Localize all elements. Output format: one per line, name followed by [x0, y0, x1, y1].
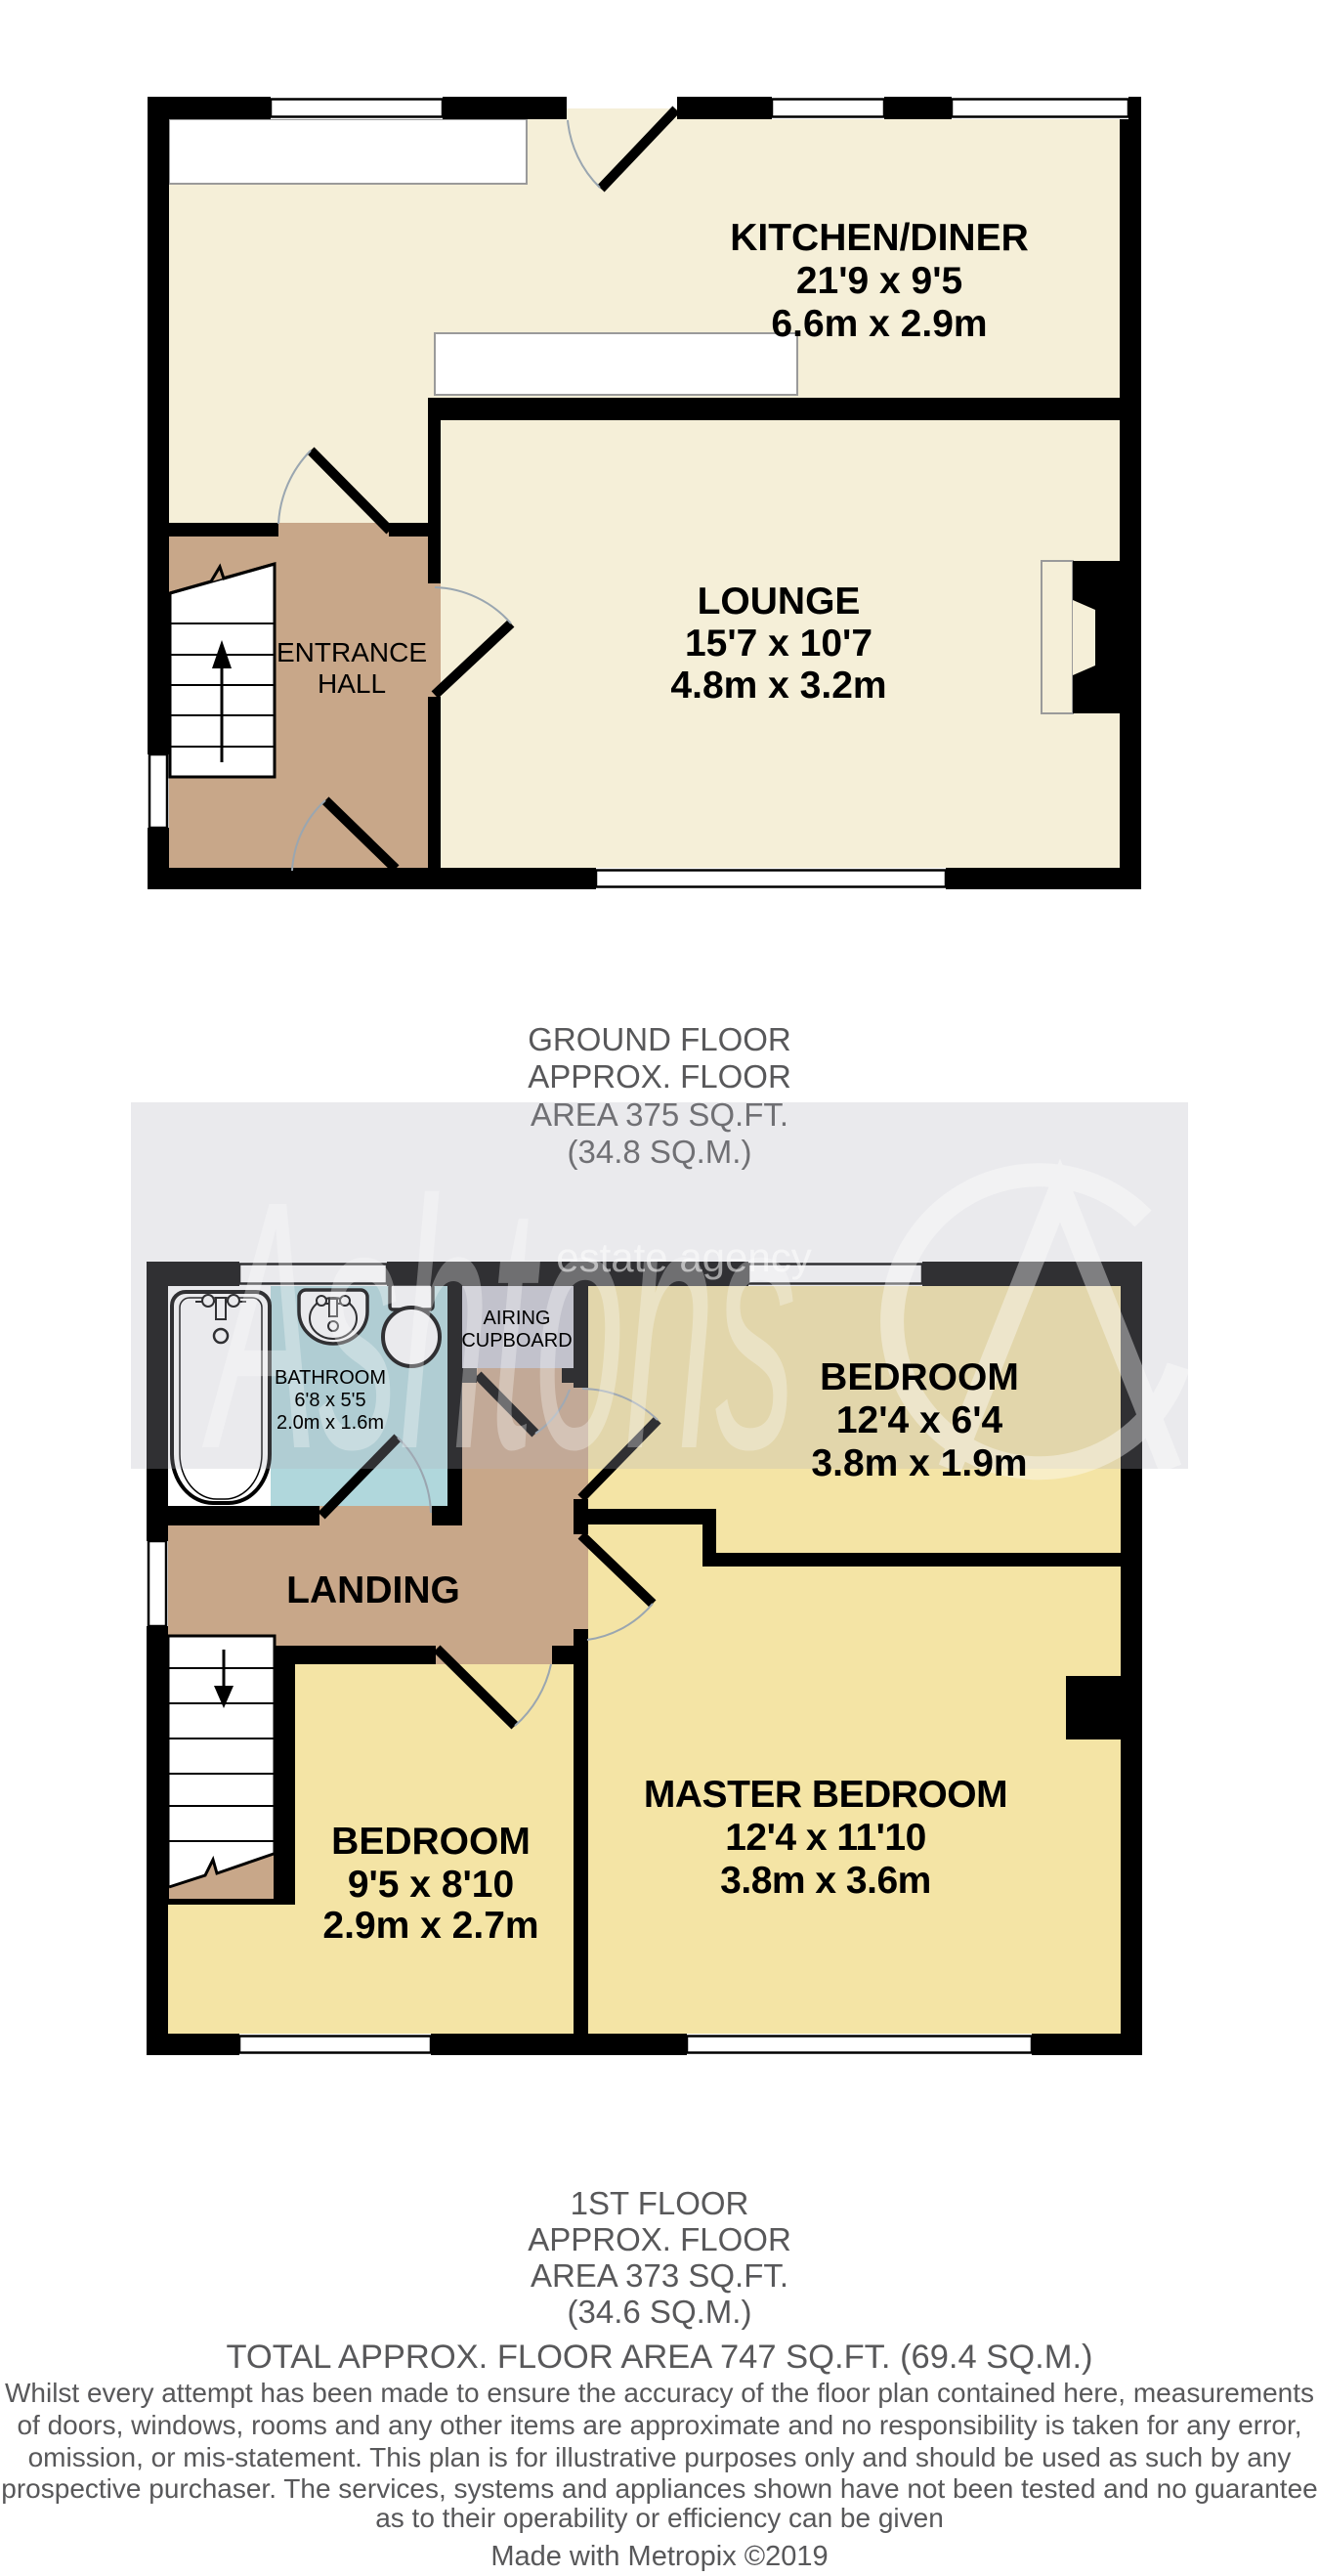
svg-text:LOUNGE: LOUNGE — [698, 580, 861, 623]
svg-text:(34.6 SQ.M.): (34.6 SQ.M.) — [568, 2294, 752, 2330]
svg-text:15'7 x 10'7: 15'7 x 10'7 — [685, 623, 872, 665]
svg-text:6'8 x 5'5: 6'8 x 5'5 — [294, 1390, 365, 1411]
svg-text:of doors, windows, rooms and a: of doors, windows, rooms and any other i… — [17, 2410, 1301, 2440]
svg-text:12'4 x 11'10: 12'4 x 11'10 — [725, 1817, 926, 1859]
svg-text:HALL: HALL — [318, 668, 386, 699]
svg-text:GROUND FLOOR: GROUND FLOOR — [528, 1021, 791, 1057]
svg-text:BEDROOM: BEDROOM — [820, 1356, 1019, 1398]
svg-text:3.8m x 1.9m: 3.8m x 1.9m — [811, 1442, 1027, 1484]
svg-text:AREA 373 SQ.FT.: AREA 373 SQ.FT. — [531, 2257, 788, 2294]
svg-text:MASTER BEDROOM: MASTER BEDROOM — [644, 1774, 1007, 1816]
svg-text:3.8m x 3.6m: 3.8m x 3.6m — [720, 1860, 931, 1902]
svg-text:APPROX. FLOOR: APPROX. FLOOR — [528, 1058, 791, 1095]
svg-text:APPROX. FLOOR: APPROX. FLOOR — [528, 2221, 791, 2257]
svg-text:KITCHEN/DINER: KITCHEN/DINER — [730, 217, 1029, 259]
svg-text:ENTRANCE: ENTRANCE — [277, 637, 427, 667]
svg-text:21'9 x 9'5: 21'9 x 9'5 — [796, 260, 962, 302]
svg-text:as to their operability or eff: as to their operability or efficiency ca… — [375, 2503, 944, 2533]
svg-text:1ST FLOOR: 1ST FLOOR — [571, 2185, 749, 2221]
svg-text:omission, or mis-statement. Th: omission, or mis-statement. This plan is… — [28, 2442, 1292, 2472]
svg-text:CUPBOARD: CUPBOARD — [461, 1330, 572, 1352]
svg-text:AIRING: AIRING — [484, 1308, 551, 1329]
svg-text:4.8m x 3.2m: 4.8m x 3.2m — [670, 665, 886, 707]
svg-text:6.6m x 2.9m: 6.6m x 2.9m — [771, 303, 987, 345]
svg-text:LANDING: LANDING — [286, 1569, 460, 1611]
svg-text:TOTAL APPROX. FLOOR AREA 747 S: TOTAL APPROX. FLOOR AREA 747 SQ.FT. (69.… — [226, 2339, 1092, 2376]
svg-text:Made with Metropix ©2019: Made with Metropix ©2019 — [490, 2541, 828, 2572]
svg-text:prospective purchaser. The ser: prospective purchaser. The services, sys… — [1, 2473, 1317, 2504]
svg-text:BATHROOM: BATHROOM — [275, 1367, 386, 1389]
svg-text:estate agency: estate agency — [556, 1234, 812, 1280]
svg-text:9'5 x 8'10: 9'5 x 8'10 — [348, 1864, 514, 1906]
svg-text:2.0m x 1.6m: 2.0m x 1.6m — [277, 1412, 384, 1434]
svg-text:Whilst every attempt has been: Whilst every attempt has been made to en… — [5, 2378, 1314, 2408]
svg-text:12'4 x 6'4: 12'4 x 6'4 — [836, 1399, 1003, 1441]
svg-text:2.9m x 2.7m: 2.9m x 2.7m — [322, 1905, 538, 1947]
svg-text:BEDROOM: BEDROOM — [331, 1821, 531, 1863]
